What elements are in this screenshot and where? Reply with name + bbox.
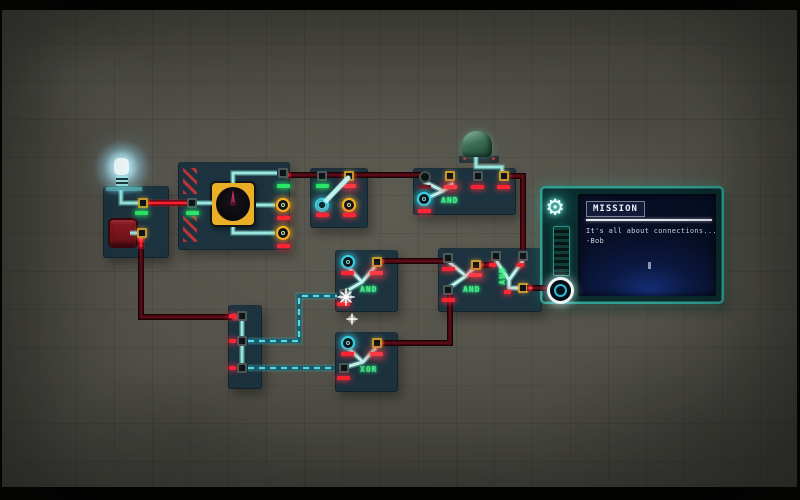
port-andright-bottom[interactable]	[443, 285, 453, 295]
indicator-andmid-top	[341, 271, 354, 275]
port-dial-out-bottom[interactable]	[276, 226, 290, 240]
port-andtop-1[interactable]	[419, 171, 431, 183]
indicator-vand-left	[489, 263, 496, 267]
port-splitter-out-2[interactable]	[237, 363, 247, 373]
port-dial-in[interactable]	[187, 198, 197, 208]
mission-divider	[586, 219, 712, 221]
port-andtop-3[interactable]	[473, 171, 483, 181]
indicator-splitter-in	[229, 314, 236, 318]
indicator-andright-out	[469, 273, 482, 277]
port-splitter-out-1[interactable]	[237, 336, 247, 346]
indicator-vand-right	[517, 263, 524, 267]
port-vand-right-in[interactable]	[518, 251, 528, 261]
dial-center-dot	[231, 202, 235, 206]
bulb-stem	[116, 176, 128, 186]
gate-label-and-right: AND	[463, 285, 480, 294]
indicator-andtop-2	[444, 185, 457, 189]
letterbox-bottom	[0, 487, 800, 500]
port-andmid-out[interactable]	[372, 257, 382, 267]
gate-label-and-mid: AND	[360, 285, 377, 294]
indicator-andright-bottom	[442, 298, 455, 302]
port-switch-common[interactable]	[315, 198, 329, 212]
gear-icon: ⚙	[547, 193, 563, 220]
port-power-out-bottom[interactable]	[137, 228, 147, 238]
port-splitter-in[interactable]	[237, 311, 247, 321]
indicator-bulb	[114, 158, 129, 175]
indicator-xor-out	[370, 352, 383, 356]
game-viewport: AND AND XOR AND AND ⚙ MISSION It's all a…	[0, 0, 800, 500]
port-andmid-bottom[interactable]	[339, 289, 349, 299]
screen-cursor	[648, 262, 651, 269]
power-button[interactable]	[108, 218, 138, 248]
port-vand-left-in[interactable]	[491, 251, 501, 261]
indicator-xor-bottom	[337, 376, 350, 380]
letterbox-top	[0, 0, 800, 10]
indicator-andtop-left	[418, 209, 431, 213]
indicator-switch-red-right	[343, 213, 356, 217]
indicator-switch-green	[316, 184, 329, 188]
mission-progress-bar	[553, 226, 570, 276]
indicator-andtop-3	[471, 185, 484, 189]
gate-label-and-vertical: AND	[498, 261, 508, 291]
indicator-dial-mid-red	[277, 216, 290, 220]
port-switch-bottom-right[interactable]	[342, 198, 356, 212]
indicator-andtop-1	[418, 185, 431, 189]
mission-input-connector[interactable]	[547, 277, 574, 304]
indicator-dial-top-green	[277, 184, 290, 188]
port-switch-top-left[interactable]	[317, 171, 327, 181]
port-andmid-top[interactable]	[341, 255, 355, 269]
port-andtop-left-in[interactable]	[417, 192, 431, 206]
port-vand-out[interactable]	[518, 283, 528, 293]
letterbox-left	[0, 0, 2, 500]
port-xor-top[interactable]	[341, 336, 355, 350]
port-andtop-2[interactable]	[445, 171, 455, 181]
mission-title: MISSION	[586, 201, 645, 217]
port-switch-top-right[interactable]	[344, 171, 354, 181]
hazard-stripes-bottom	[183, 216, 197, 242]
gate-label-and-top: AND	[441, 196, 458, 205]
indicator-dial-bottom-red	[277, 244, 290, 248]
port-xor-out[interactable]	[372, 338, 382, 348]
port-xor-bottom[interactable]	[339, 363, 349, 373]
led-lamp	[462, 131, 492, 157]
indicator-andmid-out	[370, 271, 383, 275]
port-dial-out-top[interactable]	[278, 168, 288, 178]
port-dial-out-mid[interactable]	[276, 198, 290, 212]
indicator-splitter-1	[229, 339, 236, 343]
indicator-andtop-4	[497, 185, 510, 189]
indicator-power-green	[135, 211, 148, 215]
indicator-switch-red-top	[343, 184, 356, 188]
hazard-stripes-top	[183, 168, 197, 194]
port-andright-top[interactable]	[443, 253, 453, 263]
dial-face	[216, 187, 250, 221]
indicator-splitter-2	[229, 366, 236, 370]
bulb-label-strip	[106, 187, 142, 191]
indicator-dial-in-green	[186, 211, 199, 215]
indicator-andmid-bottom	[337, 302, 350, 306]
port-andtop-4[interactable]	[499, 171, 509, 181]
indicator-andright-top	[442, 267, 455, 271]
mission-text-line2: -Bob	[586, 236, 604, 246]
indicator-switch-red-left	[316, 213, 329, 217]
rotary-dial[interactable]	[210, 181, 256, 227]
gate-label-xor: XOR	[360, 365, 377, 374]
port-power-out-top[interactable]	[138, 198, 148, 208]
port-andright-out[interactable]	[471, 260, 481, 270]
mission-text-line1: It's all about connections...	[586, 226, 717, 236]
indicator-xor-top	[341, 352, 354, 356]
